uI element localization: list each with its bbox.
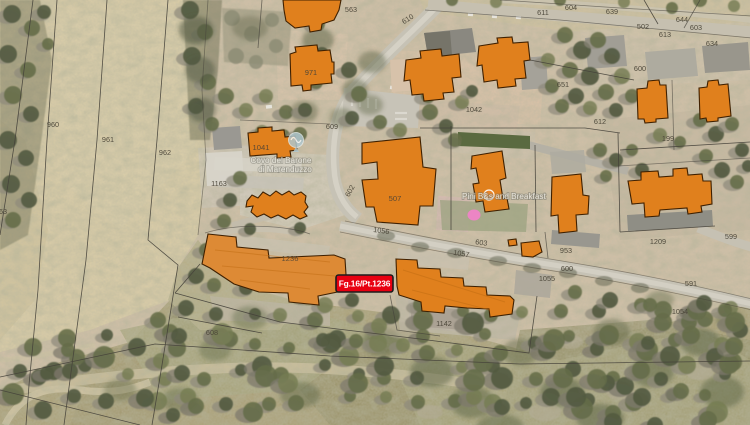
svg-text:Covo del Barone: Covo del Barone xyxy=(251,156,312,165)
svg-text:971: 971 xyxy=(305,68,317,77)
svg-text:960: 960 xyxy=(47,120,59,129)
svg-text:651: 651 xyxy=(557,80,569,89)
svg-text:di Marenduzzo: di Marenduzzo xyxy=(258,165,312,174)
svg-text:644: 644 xyxy=(676,15,688,24)
svg-text:603: 603 xyxy=(475,237,488,248)
svg-text:Pini B&s and Breakfast: Pini B&s and Breakfast xyxy=(462,192,546,201)
svg-text:1236: 1236 xyxy=(282,254,299,263)
svg-text:962: 962 xyxy=(159,148,171,157)
svg-text:1054: 1054 xyxy=(672,307,688,316)
svg-text:961: 961 xyxy=(102,135,114,144)
svg-text:1142: 1142 xyxy=(436,319,452,328)
svg-text:613: 613 xyxy=(659,30,671,39)
svg-text:963: 963 xyxy=(0,207,7,216)
svg-text:507: 507 xyxy=(389,194,402,203)
svg-text:599: 599 xyxy=(725,232,737,241)
svg-text:1055: 1055 xyxy=(539,274,555,283)
svg-text:199: 199 xyxy=(662,134,674,143)
svg-text:502: 502 xyxy=(637,22,649,31)
svg-text:1042: 1042 xyxy=(466,105,482,114)
svg-text:563: 563 xyxy=(345,5,357,14)
svg-text:1041: 1041 xyxy=(253,143,270,152)
svg-text:609: 609 xyxy=(326,122,338,131)
svg-text:Fg.16/Pt.1236: Fg.16/Pt.1236 xyxy=(339,279,391,289)
svg-text:611: 611 xyxy=(537,8,549,17)
svg-text:600: 600 xyxy=(634,64,646,73)
svg-text:639: 639 xyxy=(606,7,618,16)
svg-text:608: 608 xyxy=(206,328,218,337)
svg-text:1209: 1209 xyxy=(650,237,666,246)
svg-text:600: 600 xyxy=(561,264,573,273)
svg-text:1163: 1163 xyxy=(211,179,227,188)
svg-text:612: 612 xyxy=(594,117,606,126)
svg-text:634: 634 xyxy=(706,39,718,48)
svg-text:603: 603 xyxy=(690,23,702,32)
svg-text:953: 953 xyxy=(560,246,572,255)
svg-text:604: 604 xyxy=(565,3,577,12)
svg-text:591: 591 xyxy=(685,279,697,288)
